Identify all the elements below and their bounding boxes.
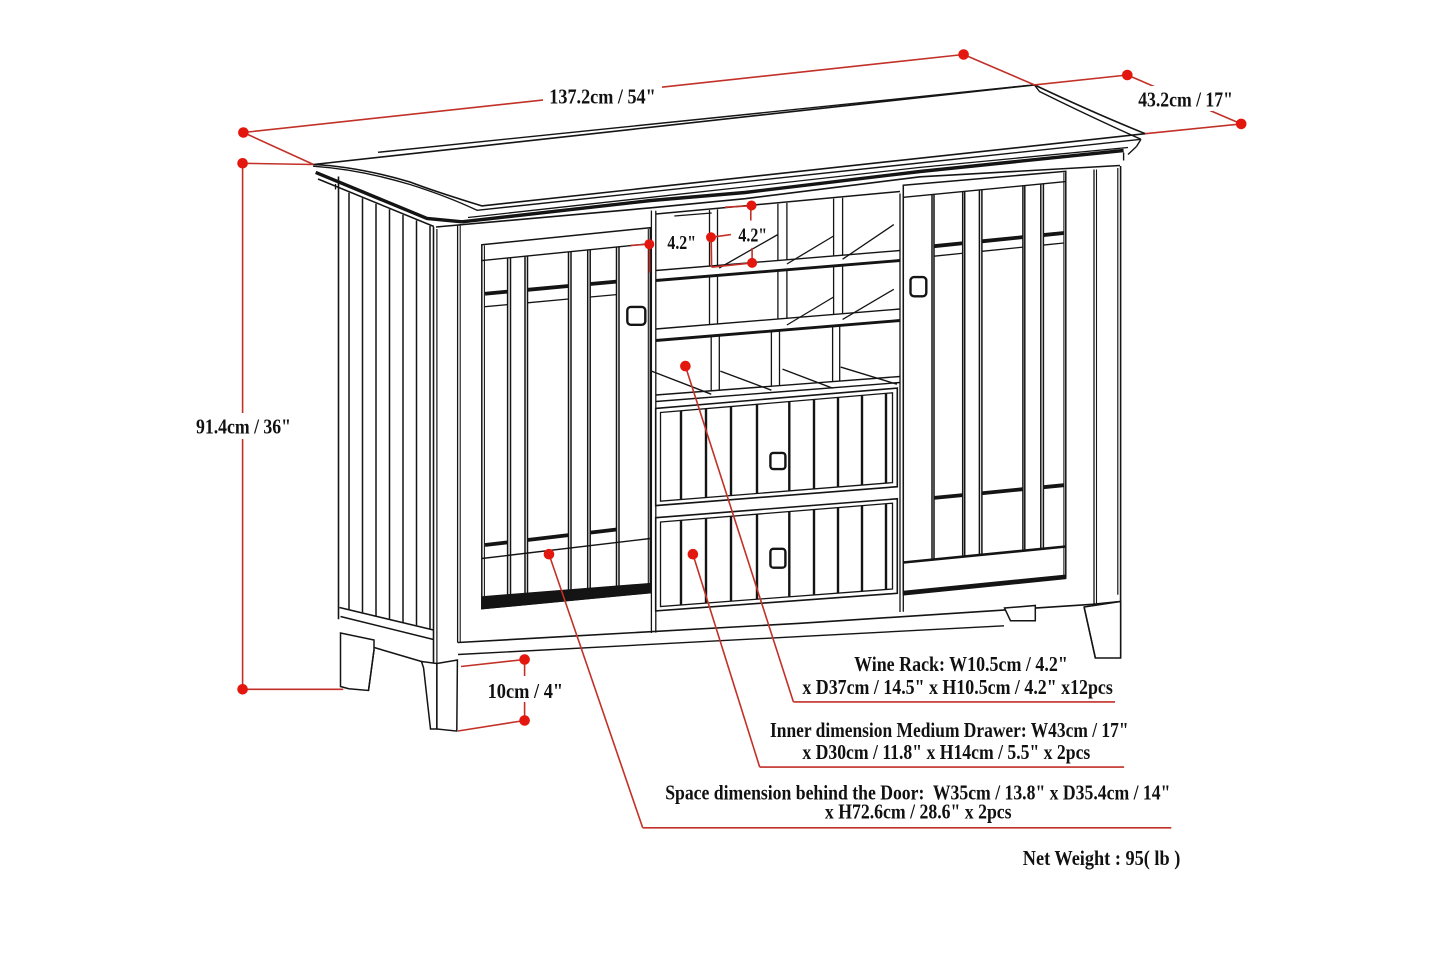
svg-text:x H72.6cm / 28.6" x 2pcs: x H72.6cm / 28.6" x 2pcs <box>825 800 1012 824</box>
svg-text:91.4cm / 36": 91.4cm / 36" <box>196 415 291 439</box>
svg-text:43.2cm / 17": 43.2cm / 17" <box>1138 88 1233 112</box>
svg-text:Net Weight : 95( lb ): Net Weight : 95( lb ) <box>1023 846 1181 870</box>
svg-text:10cm / 4": 10cm / 4" <box>488 679 563 703</box>
svg-text:x D30cm / 11.8" x H14cm / 5.5": x D30cm / 11.8" x H14cm / 5.5" x 2pcs <box>802 740 1090 764</box>
svg-text:Wine Rack: W10.5cm / 4.2": Wine Rack: W10.5cm / 4.2" <box>854 652 1068 676</box>
svg-text:x D37cm / 14.5" x H10.5cm / 4.: x D37cm / 14.5" x H10.5cm / 4.2" x12pcs <box>802 675 1112 699</box>
svg-text:4.2": 4.2" <box>667 232 696 254</box>
svg-text:137.2cm / 54": 137.2cm / 54" <box>549 85 655 109</box>
svg-text:Inner dimension Medium Drawer:: Inner dimension Medium Drawer: W43cm / 1… <box>770 718 1129 742</box>
svg-text:4.2": 4.2" <box>738 225 767 247</box>
